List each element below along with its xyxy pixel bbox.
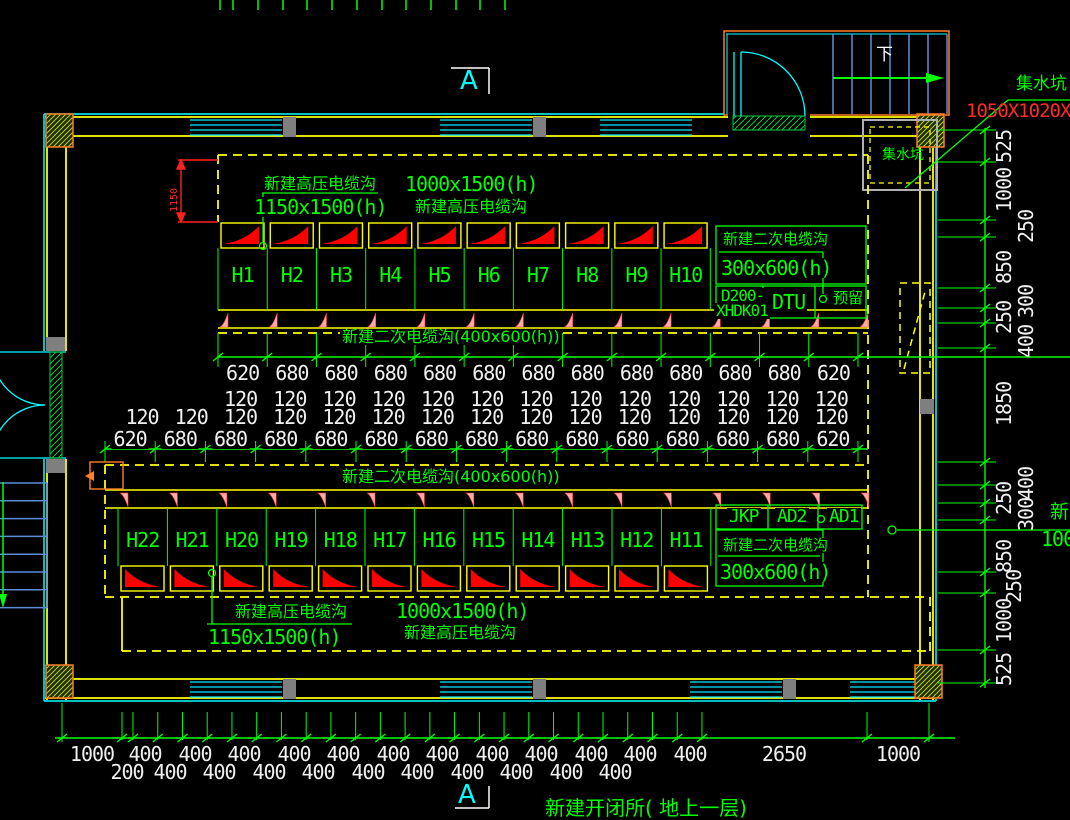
top-edge-ticks [220, 0, 505, 10]
cabinet-label: H9 [623, 265, 649, 285]
dim-label: 680 [766, 363, 803, 383]
dim-label: 525 [994, 653, 1014, 686]
dim-label: 620 [224, 363, 261, 383]
dim-label: 120 [517, 407, 554, 427]
dim-label: 680 [618, 363, 655, 383]
entrance-door [728, 52, 810, 138]
dim-label: 200 [108, 762, 145, 782]
dim-label: 680 [463, 429, 500, 449]
sec-trench-size-bottomright: 300x600(h) [718, 562, 832, 582]
dim-label: 120 [468, 407, 505, 427]
dim-label: 680 [312, 429, 349, 449]
dim-label: 250 [1016, 210, 1036, 243]
cabinet-label: H5 [426, 265, 452, 285]
cabinet-label: H4 [377, 265, 403, 285]
drawing-title: 新建开闭所( 地上一层) [545, 798, 747, 818]
leader-circle [888, 526, 896, 534]
dim-label: 620 [815, 363, 852, 383]
dim-label: 400 [497, 762, 534, 782]
door-swing-arc [0, 352, 45, 405]
stair-direction-arrow [833, 73, 944, 83]
dim-label: 400 [349, 762, 386, 782]
trench-width-bracket-top [177, 160, 218, 222]
dim-label: 1000 [68, 744, 116, 764]
jkp-label: JKP [727, 508, 761, 526]
sec-trench-label-mid-top: 新建二次电缆沟(400x600(h)) [340, 329, 562, 345]
hv-trench-size-bottom: 1150x1500(h) [206, 627, 343, 647]
dim-label: 2650 [760, 744, 808, 764]
dim-label: 680 [667, 363, 704, 383]
dim-label: 120 [123, 407, 160, 427]
dim-label: 400 [547, 762, 584, 782]
dim-label: 680 [714, 429, 751, 449]
dim-label: 680 [664, 429, 701, 449]
dim-label: 680 [563, 429, 600, 449]
cabinet-label: H1 [230, 265, 256, 285]
dim-label: 120 [271, 407, 308, 427]
dim-label: 1000 [994, 599, 1014, 643]
dim-label: 680 [716, 363, 753, 383]
dim-label: 120 [714, 407, 751, 427]
dim-label: 400 [250, 762, 287, 782]
corner-column [46, 114, 73, 147]
cabinet-label: H6 [476, 265, 502, 285]
door-swing-arc [741, 52, 805, 116]
dim-label: 680 [470, 363, 507, 383]
dim-label: 680 [614, 429, 651, 449]
dim-label: 850 [994, 540, 1014, 573]
cabinet-label: H17 [371, 530, 408, 550]
cabinet-label: H16 [421, 530, 458, 550]
hv-trench-label-top: 新建高压电缆沟 [262, 176, 378, 192]
leader-circle [209, 570, 216, 577]
sump-pit-callout-label: 集水坑 [1016, 76, 1067, 93]
dim-label: 400 [596, 762, 633, 782]
dim-label: 680 [363, 429, 400, 449]
sec-trench-label-mid-bottom: 新建二次电缆沟(400x600(h)) [340, 469, 562, 485]
cabinet-row-bottom [121, 566, 707, 591]
section-marker-a-bottom: A [458, 782, 476, 808]
dim-label: 400 [299, 762, 336, 782]
cabinet-label: H10 [667, 265, 704, 285]
dim-label: 1850 [994, 382, 1014, 426]
dim-label: 680 [421, 363, 458, 383]
hv-trench-label-bottom2: 新建高压电缆沟 [402, 625, 518, 641]
cabinet-label: H22 [124, 530, 161, 550]
dim-label: 250 [994, 482, 1014, 515]
hv-trench-size-top2: 1000x1500(h) [403, 174, 540, 194]
dim-label: 680 [519, 363, 556, 383]
dim-label: 120 [419, 407, 456, 427]
dim-label: 680 [413, 429, 450, 449]
dim-label: 250 [994, 301, 1014, 334]
dim-label: 620 [112, 429, 149, 449]
dim-label: 400 [671, 744, 708, 764]
floor-plan-canvas[interactable]: 新建高压电缆沟 1150x1500(h) 1000x1500(h) 新建高压电缆… [0, 0, 1070, 820]
cabinet-label: H15 [470, 530, 507, 550]
sump-pit-inside-label: 集水坑 [882, 148, 924, 162]
sump-pit-size-label: 1050X1020X [966, 102, 1070, 121]
dim-label: 525 [994, 130, 1014, 163]
d200-label-2: XHDK01 [714, 303, 770, 319]
dim-label: 850 [994, 251, 1014, 284]
dim-label: 680 [323, 363, 360, 383]
dim-label: 680 [513, 429, 550, 449]
dim-label: 400 [200, 762, 237, 782]
staircase-left [0, 483, 47, 608]
trench-width-dim-text: 1150 [170, 188, 180, 212]
cabinet-label: H20 [223, 530, 260, 550]
right-edge-partial-text: 新 [1050, 503, 1069, 522]
cabinet-label: H19 [272, 530, 309, 550]
dim-label: 680 [569, 363, 606, 383]
cabinet-label: H11 [668, 530, 705, 550]
sec-trench-size-topright: 300x600(h) [719, 258, 833, 278]
right-edge-partial-dim: 100 [1041, 529, 1070, 549]
dim-label: 680 [162, 429, 199, 449]
dim-label: 120 [567, 407, 604, 427]
dim-label: 120 [763, 407, 800, 427]
dim-label: 120 [616, 407, 653, 427]
hv-trench-label-top2: 新建高压电缆沟 [413, 199, 529, 215]
dim-label: 400 [398, 762, 435, 782]
ad1-label: AD1 [827, 508, 861, 526]
dim-label: 400 [1016, 467, 1036, 500]
shaft-box [900, 283, 930, 373]
cabinet-label: H14 [519, 530, 556, 550]
dim-label: 1000 [994, 168, 1014, 212]
hv-trench-size-bottom2: 1000x1500(h) [394, 601, 531, 621]
left-double-door [0, 351, 68, 459]
cabinet-label: H2 [279, 265, 305, 285]
stair-down-label: 下 [876, 47, 893, 64]
cabinet-label: H7 [525, 265, 551, 285]
hv-trench-size-top: 1150x1500(h) [252, 197, 389, 217]
hv-trench-label-bottom: 新建高压电缆沟 [233, 604, 349, 620]
cabinet-label: H13 [569, 530, 606, 550]
dim-label: 620 [814, 429, 851, 449]
sec-trench-label-bottomright: 新建二次电缆沟 [721, 538, 830, 553]
sec-trench-label-topright: 新建二次电缆沟 [721, 232, 830, 247]
dim-label: 680 [372, 363, 409, 383]
dim-label: 120 [173, 407, 210, 427]
dim-label: 120 [320, 407, 357, 427]
dim-label: 400 [448, 762, 485, 782]
dim-label: 680 [262, 429, 299, 449]
dim-label: 120 [665, 407, 702, 427]
dim-label: 300 [1016, 498, 1036, 531]
cabinet-row-top [221, 223, 707, 248]
cabinet-label: H8 [574, 265, 600, 285]
section-marker-a-top: A [460, 68, 478, 94]
reserved-label: 预留 [831, 291, 865, 306]
cabinet-label: H12 [618, 530, 655, 550]
dtu-label: DTU [770, 292, 807, 312]
dim-label: 680 [212, 429, 249, 449]
dim-label: 120 [813, 407, 850, 427]
dim-label: 680 [273, 363, 310, 383]
ad2-label: AD2 [775, 508, 809, 526]
cabinet-label: H21 [174, 530, 211, 550]
dim-label: 1000 [874, 744, 922, 764]
corner-column [915, 665, 942, 698]
dim-label: 680 [764, 429, 801, 449]
cabinet-label: H3 [328, 265, 354, 285]
dim-label: 120 [222, 407, 259, 427]
reserved-circle [820, 296, 827, 303]
trench-width-bracket-bottom [85, 462, 123, 489]
entrance-vestibule [724, 31, 949, 115]
corner-column [46, 665, 73, 698]
door-swing-arc [0, 405, 45, 458]
dim-label: 300 [1016, 285, 1036, 318]
cabinet-label: H18 [322, 530, 359, 550]
dim-label: 400 [1016, 325, 1036, 358]
dim-label: 120 [370, 407, 407, 427]
dim-label: 400 [151, 762, 188, 782]
